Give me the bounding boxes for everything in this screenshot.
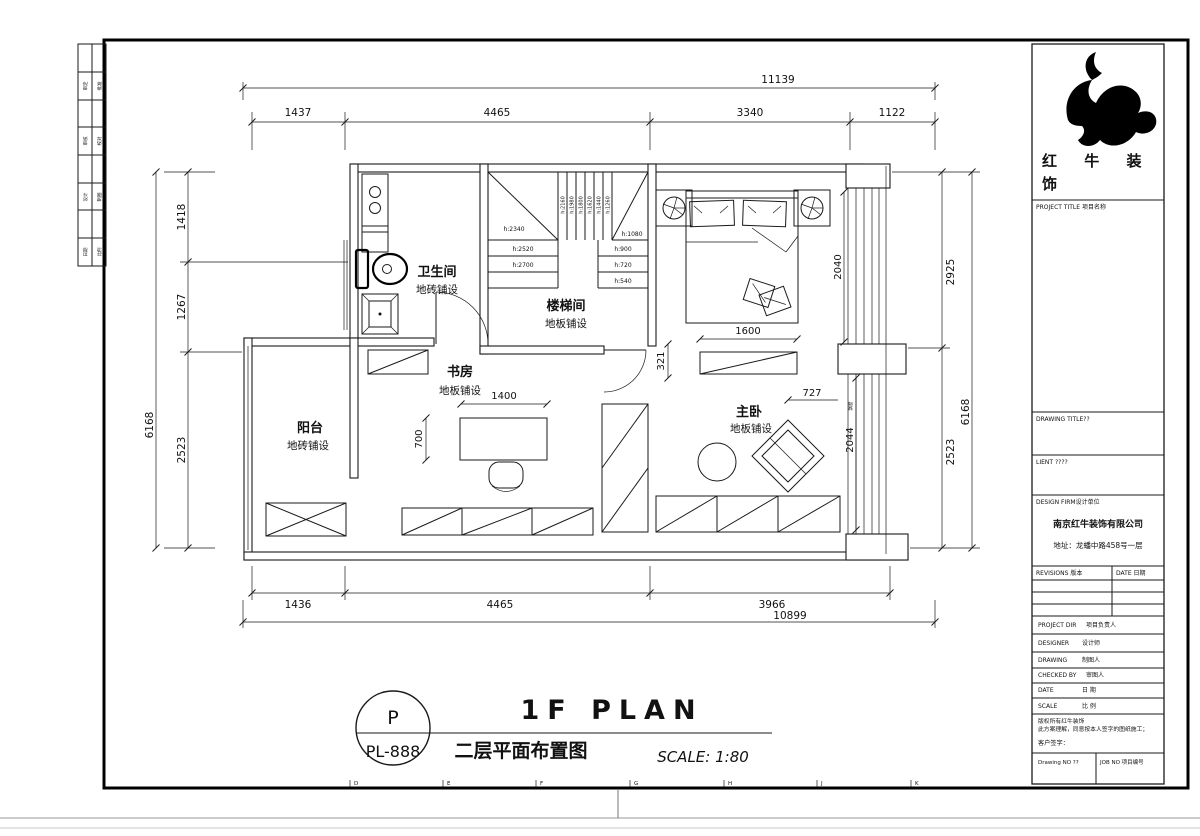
dim-chain-bottom: 1436 4465 3966 10899 — [240, 566, 939, 628]
row-label: SCALE — [1038, 703, 1057, 710]
stair-h: h:720 — [614, 262, 631, 269]
stamp-code: PL-888 — [366, 742, 421, 761]
strip-label: 日期 — [83, 247, 89, 256]
stair-h: h:1800 — [579, 196, 585, 214]
room-finish-stairwell: 地板铺设 — [545, 317, 587, 330]
title-block: 红 牛 装 饰 PROJECT TITLE 项目名称 DRAWING TITLE… — [1032, 44, 1164, 784]
strip-label: 审核 — [82, 136, 89, 145]
tv-cabinet — [700, 352, 797, 374]
firm-name: 南京红牛装饰有限公司 — [1053, 518, 1143, 530]
plan-title-en: 1F PLAN — [520, 695, 703, 726]
dim-1400: 1400 — [491, 391, 516, 402]
client-label: LIENT ???? — [1036, 459, 1068, 466]
stair-h: h:1260 — [606, 196, 612, 214]
grid-letter: H — [728, 781, 732, 787]
company-name-line1: 红 牛 装 — [1042, 152, 1152, 170]
grid-letter: G — [634, 781, 638, 787]
grid-letter: E — [447, 781, 451, 787]
drawing-title-label: DRAWING TITLE?? — [1036, 416, 1090, 423]
tall-cabinet — [602, 404, 648, 532]
room-label-balcony: 阳台 — [297, 420, 323, 436]
plan-title-cn: 二层平面布置图 — [454, 739, 587, 762]
dim-2040: 2040 — [833, 254, 844, 279]
row-value: 审图人 — [1086, 671, 1104, 679]
stair-h: h:2160 — [561, 196, 567, 214]
project-title-label: PROJECT TITLE 项目名称 — [1036, 203, 1106, 211]
note-signature: 客户签字： — [1038, 739, 1069, 747]
dim-top-total: 11139 — [761, 74, 794, 86]
dim-top-seg: 3340 — [737, 107, 764, 119]
job-no-label: JOB NO 项目编号 — [1099, 758, 1144, 766]
dim-chain-top: 11139 1437 4465 3340 1122 — [240, 74, 939, 150]
revisions-header: REVISIONS 版本 — [1036, 569, 1082, 577]
grid-letter: F — [540, 781, 543, 787]
room-finish-bathroom: 地砖铺设 — [416, 283, 458, 296]
stair-h: h:2700 — [512, 262, 533, 269]
toilet — [356, 250, 407, 288]
grid-letter: D — [354, 781, 358, 787]
footer-title: P PL-888 1F PLAN 二层平面布置图 SCALE: 1:80 — [356, 691, 772, 766]
room-finish-study: 地板铺设 — [439, 384, 481, 397]
company-logo-icon — [1066, 52, 1156, 146]
drawing-sheet: D E F G H J K 审定 批准 审核 校对 设计 制图 日期 比例 — [0, 0, 1200, 836]
stair-h: h:2340 — [503, 226, 524, 233]
dim-bay-tag: 飘窗 — [847, 401, 854, 410]
dim-top-seg: 4465 — [484, 107, 511, 119]
stair-h: h:2520 — [512, 246, 533, 253]
note-line-1: 版权所有红牛装饰 — [1038, 717, 1085, 725]
room-label-stairwell: 楼梯间 — [546, 298, 585, 314]
desk — [460, 418, 547, 492]
dim-left-seg: 2523 — [176, 437, 188, 464]
stair-h: h:900 — [614, 246, 631, 253]
floor-drain — [362, 294, 398, 334]
dim-right-total: 6168 — [960, 399, 972, 426]
row-value: 项目负责人 — [1086, 621, 1116, 629]
throw-pillows — [743, 279, 791, 316]
date-header: DATE 日期 — [1116, 569, 1146, 577]
room-label-study: 书房 — [447, 364, 473, 380]
dim-top-seg: 1437 — [285, 107, 312, 119]
dim-bottom-seg: 1436 — [285, 599, 312, 611]
dim-left-total: 6168 — [144, 412, 156, 439]
dim-left-seg: 1267 — [176, 294, 188, 321]
drawing-no-label: Drawing NO ?? — [1038, 760, 1079, 766]
strip-label: 批准 — [96, 81, 103, 90]
plan-scale: SCALE: 1:80 — [657, 748, 749, 766]
design-firm-label: DESIGN FIRM设计单位 — [1036, 498, 1100, 506]
dim-321: 321 — [656, 351, 667, 370]
company-name-line2: 饰 — [1042, 175, 1057, 193]
dim-2044: 2044 — [845, 427, 856, 452]
room-finish-master: 地板铺设 — [730, 422, 772, 435]
stamp-letter: P — [387, 707, 398, 729]
strip-label: 制图 — [96, 192, 103, 201]
wardrobe — [656, 496, 840, 532]
dim-727: 727 — [802, 388, 821, 399]
round-table — [698, 443, 736, 481]
strip-label: 比例 — [96, 247, 103, 256]
row-value: 比 例 — [1082, 702, 1096, 710]
wall-lamp-left — [656, 190, 692, 226]
row-value: 设计师 — [1082, 639, 1100, 647]
study-low-cabinet — [402, 508, 593, 535]
left-revision-strip: 审定 批准 审核 校对 设计 制图 日期 比例 — [78, 44, 106, 266]
row-label: CHECKED BY — [1038, 672, 1077, 679]
bathroom-vanity — [362, 174, 388, 252]
stair-h: h:540 — [614, 278, 631, 285]
row-value: 制图人 — [1082, 656, 1100, 664]
dim-700: 700 — [414, 429, 425, 448]
stair-h: h:1620 — [588, 196, 594, 214]
dim-top-seg: 1122 — [879, 107, 906, 119]
study-cabinet — [368, 350, 428, 374]
strip-label: 设计 — [82, 192, 89, 201]
row-label: DRAWING — [1038, 657, 1068, 664]
room-label-master: 主卧 — [736, 404, 762, 420]
bathroom-window — [344, 240, 347, 330]
strip-label: 校对 — [96, 136, 103, 145]
bedroom-door — [604, 350, 646, 392]
stair-h: h:1980 — [570, 196, 576, 214]
room-label-bathroom: 卫生间 — [417, 264, 456, 280]
dim-1600: 1600 — [735, 326, 760, 337]
stair-h: h:1440 — [597, 196, 603, 214]
row-label: DATE — [1038, 687, 1054, 694]
grid-letter: J — [820, 781, 823, 787]
dim-right-seg: 2925 — [945, 259, 957, 286]
stair-h: h:1080 — [621, 231, 642, 238]
grid-letter: K — [915, 781, 919, 787]
dim-bottom-seg: 4465 — [487, 599, 514, 611]
row-label: DESIGNER — [1038, 640, 1069, 647]
firm-address: 地址：龙蟠中路458号一层 — [1053, 540, 1143, 550]
dim-bottom-total: 10899 — [773, 610, 806, 622]
strip-label: 审定 — [82, 81, 89, 90]
row-label: PROJECT DIR — [1038, 622, 1076, 629]
room-finish-balcony: 地砖铺设 — [287, 439, 329, 452]
row-value: 日 期 — [1082, 686, 1096, 694]
frame-grid-letters: D E F G H J K — [350, 780, 919, 787]
dim-left-seg: 1418 — [176, 204, 188, 231]
note-line-2: 此方案理解，同意按本人签字的图纸施工； — [1038, 725, 1148, 733]
wall-lamp-right — [794, 190, 830, 226]
balcony-unit — [266, 503, 346, 536]
dim-right-seg: 2523 — [945, 439, 957, 466]
